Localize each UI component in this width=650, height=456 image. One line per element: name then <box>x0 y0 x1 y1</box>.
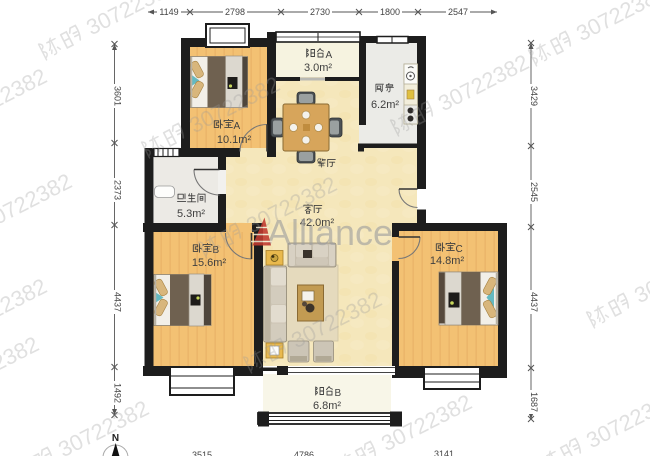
svg-text:3515: 3515 <box>192 450 212 456</box>
svg-text:2547: 2547 <box>448 7 468 17</box>
svg-text:4437: 4437 <box>529 292 539 312</box>
svg-text:3601: 3601 <box>113 86 123 106</box>
svg-text:3.0m²: 3.0m² <box>304 62 332 74</box>
svg-text:1149: 1149 <box>159 7 178 17</box>
svg-text:1687: 1687 <box>529 392 539 412</box>
svg-text:B: B <box>335 388 342 399</box>
svg-text:15.6m²: 15.6m² <box>192 257 227 269</box>
svg-text:A: A <box>326 50 333 61</box>
svg-text:4786: 4786 <box>294 450 314 456</box>
svg-text:6.2m²: 6.2m² <box>371 99 399 111</box>
svg-text:1492: 1492 <box>113 383 123 403</box>
svg-text:Alliance: Alliance <box>267 212 393 253</box>
svg-text:2730: 2730 <box>310 7 330 17</box>
svg-text:4437: 4437 <box>113 292 123 312</box>
svg-text:6.8m²: 6.8m² <box>313 400 341 412</box>
svg-text:A: A <box>234 121 241 132</box>
svg-text:5.3m²: 5.3m² <box>177 208 205 220</box>
svg-text:3429: 3429 <box>529 86 539 106</box>
svg-text:1800: 1800 <box>380 7 400 17</box>
svg-text:C: C <box>456 244 463 255</box>
svg-text:2373: 2373 <box>113 180 123 200</box>
svg-text:14.8m²: 14.8m² <box>430 255 465 267</box>
svg-text:2545: 2545 <box>529 182 539 202</box>
svg-text:3141: 3141 <box>434 449 454 456</box>
svg-text:10.1m²: 10.1m² <box>217 134 252 146</box>
svg-text:2798: 2798 <box>225 7 245 17</box>
